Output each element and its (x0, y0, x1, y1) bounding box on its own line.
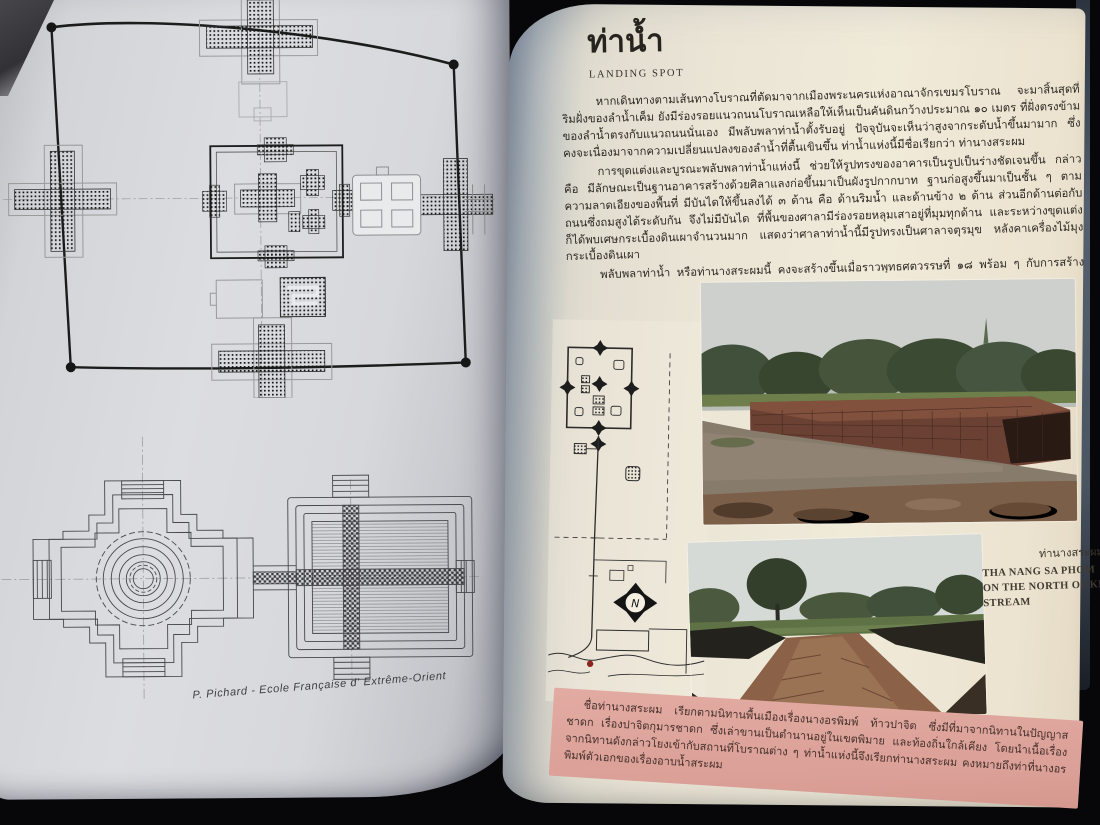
photo-caption-thai: ท่านางสระผม (981, 542, 1100, 564)
monument-square (626, 466, 640, 480)
svg-text:N: N (631, 597, 639, 610)
page-subtitle: LANDING SPOT (589, 68, 685, 81)
central-sanctuary-plan (234, 169, 324, 234)
east-gate-plan (410, 158, 495, 251)
legend-note-box: ชื่อท่านางสระผม เรียกตามนิทานพื้นเมืองเร… (549, 688, 1083, 809)
route-map: N (545, 319, 712, 704)
temple-town-site-plan (1, 0, 498, 400)
paragraph-1: หากเดินทางตามเส้นทางโบราณที่ตัดมาจากเมือ… (562, 81, 1082, 162)
photo-landing-platform (701, 279, 1078, 525)
body-text: หากเดินทางตามเส้นทางโบราณที่ตัดมาจากเมือ… (562, 81, 1085, 280)
left-page: P. Pichard - Ecole Française d' Extrême-… (0, 0, 515, 800)
photo-ancient-road (687, 534, 986, 723)
west-gate-plan (8, 145, 117, 258)
paragraph-2: การขุดแต่งและบูรณะพลับพลาท่าน้ำแห่งนี้ ช… (563, 151, 1083, 266)
north-gate-plan (199, 0, 318, 84)
right-page: ท่าน้ำ LANDING SPOT หากเดินทางตามเส้นทาง… (503, 4, 1086, 808)
annex-grid-building (352, 167, 420, 235)
south-dark-building (280, 277, 325, 316)
page-title: ท่าน้ำ (587, 26, 664, 58)
cruciform-terrace-plan (0, 426, 480, 701)
legend-note-text: ชื่อท่านางสระผม เรียกตามนิทานพื้นเมืองเร… (564, 696, 1069, 796)
south-gate-plan (211, 317, 332, 398)
photo-caption: ท่านางสระผม THA NANG SA PHOM ON THE NORT… (981, 542, 1100, 612)
